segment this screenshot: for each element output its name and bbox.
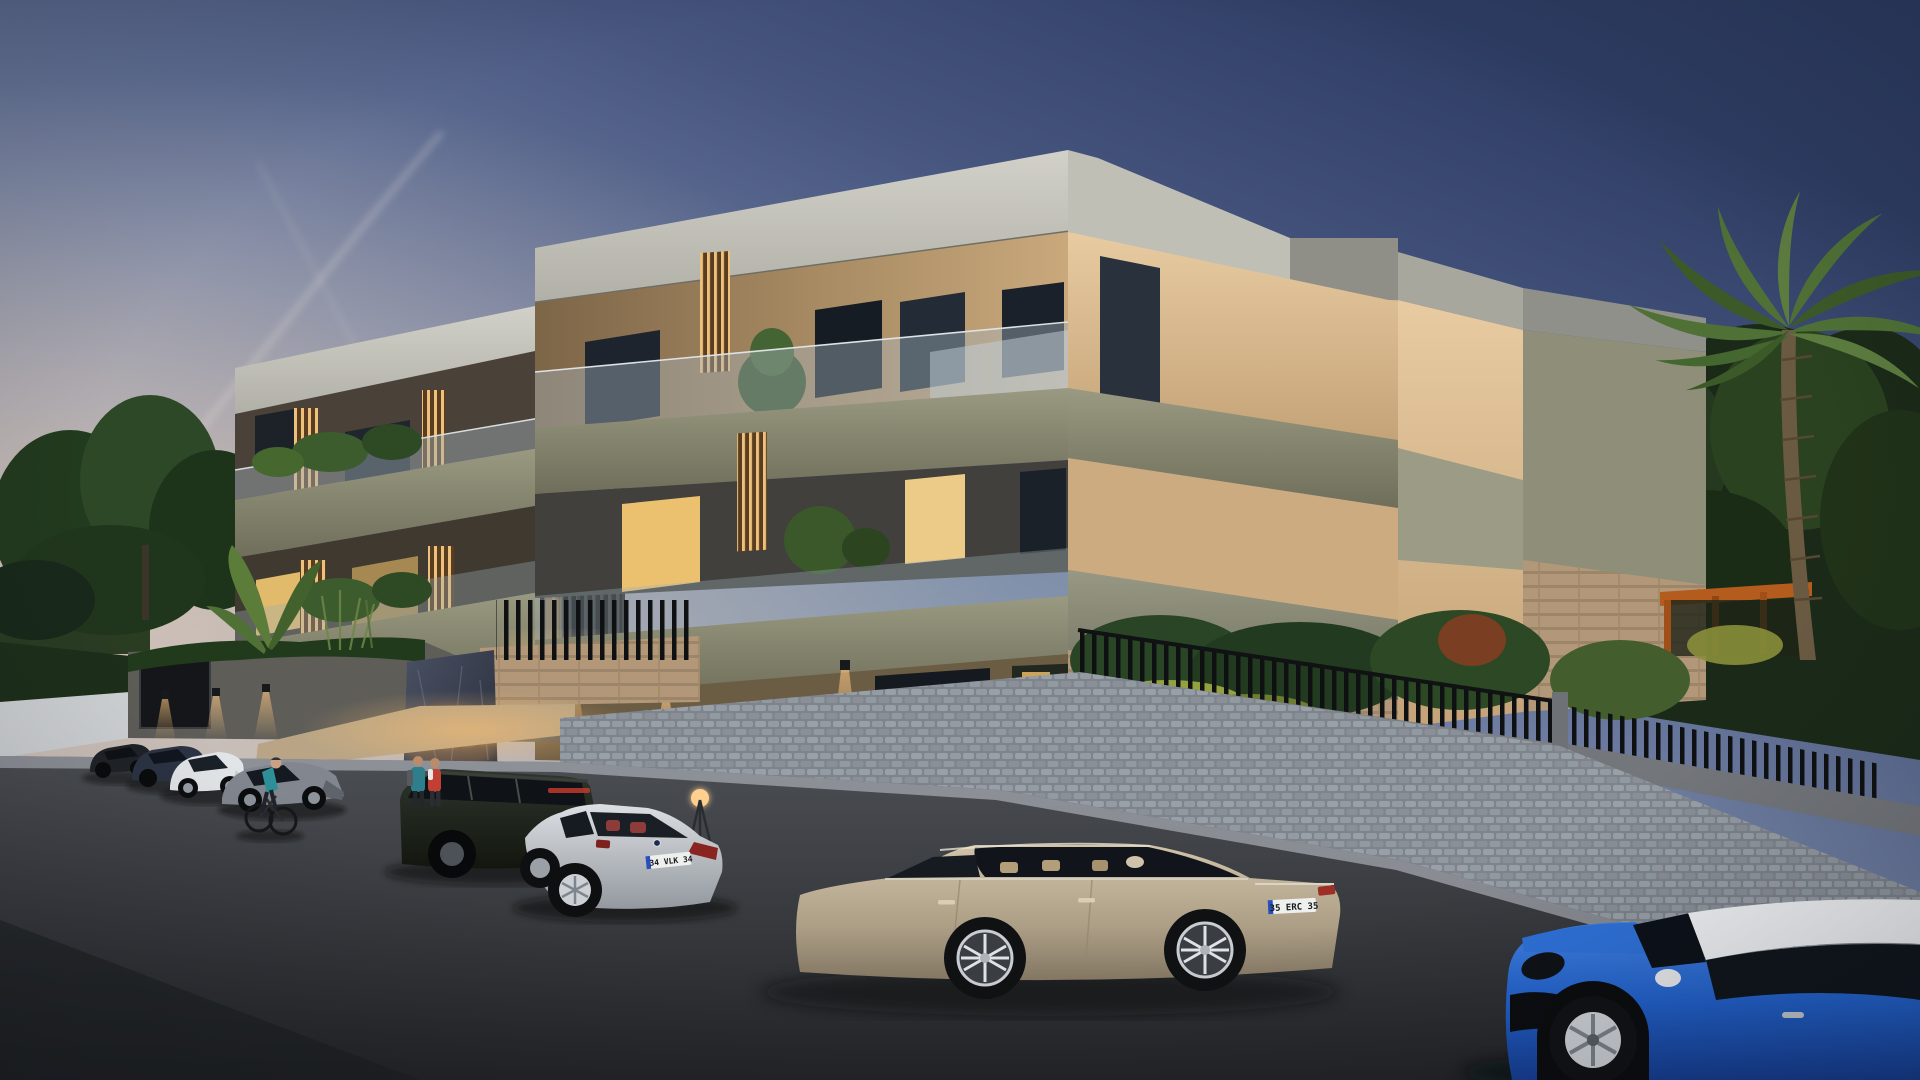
rendering-canvas: EDZEN (0, 0, 1920, 1080)
scene-svg: EDZEN (0, 0, 1920, 1080)
vignette (0, 0, 1920, 1080)
